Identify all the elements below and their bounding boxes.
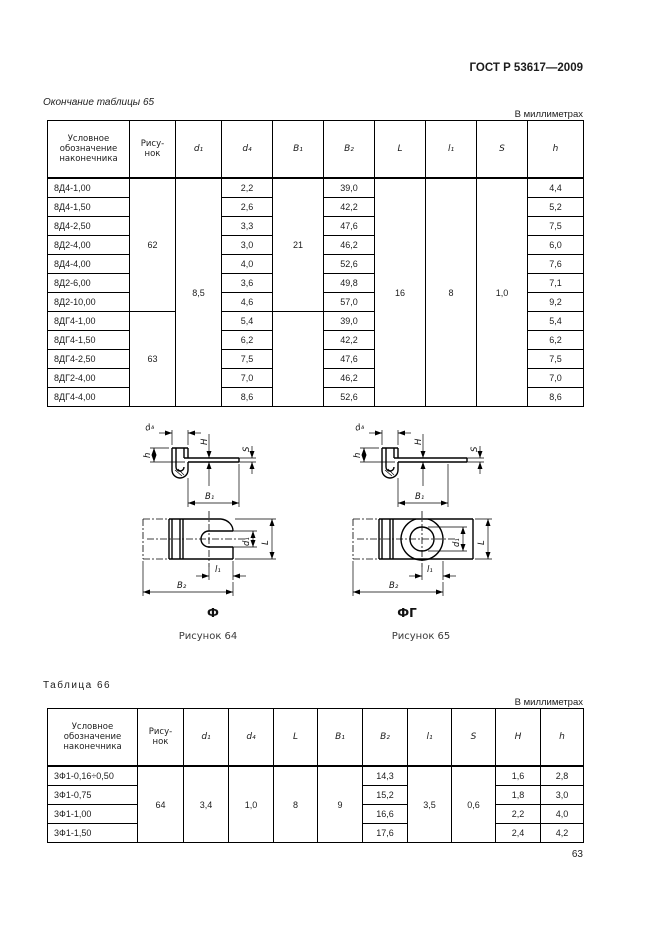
H-cell: 1,6 bbox=[496, 766, 541, 786]
figure-64-caption: Рисунок 64 bbox=[179, 631, 238, 642]
designation-cell: 3Ф1-0,75 bbox=[48, 786, 138, 805]
table-66: Условное обозначение наконечника Рису-но… bbox=[47, 708, 584, 843]
col-B1: B₁ bbox=[273, 121, 324, 179]
standard-reference: ГОСТ Р 53617—2009 bbox=[470, 62, 583, 74]
dim-label-S: S bbox=[470, 446, 480, 452]
d4-cell: 8,6 bbox=[222, 388, 273, 407]
dim-label-d1: d₁ bbox=[452, 538, 462, 547]
type-label-ring: ФГ bbox=[397, 606, 417, 620]
d4-cell: 5,4 bbox=[222, 312, 273, 331]
dim-label-d1: d₁ bbox=[242, 537, 252, 546]
col-d4: d₄ bbox=[229, 709, 274, 767]
table65-header-row: Условное обозначение наконечника Рису-но… bbox=[48, 121, 584, 179]
B2-cell: 42,2 bbox=[324, 198, 375, 217]
dim-label-B1: B₁ bbox=[205, 492, 214, 502]
designation-cell: 8ДГ4-4,00 bbox=[48, 388, 130, 407]
d4-cell: 4,0 bbox=[222, 255, 273, 274]
table-row: 3Ф1-0,16÷0,50 64 3,4 1,0 8 9 14,3 3,5 0,… bbox=[48, 766, 584, 786]
col-h: h bbox=[541, 709, 584, 767]
col-designation: Условное обозначение наконечника bbox=[48, 709, 138, 767]
d4-cell: 2,2 bbox=[222, 178, 273, 198]
dim-label-h: h bbox=[143, 453, 153, 458]
h-cell: 8,6 bbox=[528, 388, 584, 407]
d4-cell: 7,5 bbox=[222, 350, 273, 369]
d1-cell: 8,5 bbox=[176, 178, 222, 407]
col-S: S bbox=[452, 709, 496, 767]
H-cell: 2,2 bbox=[496, 805, 541, 824]
dim-label-H: H bbox=[414, 438, 424, 445]
col-L: L bbox=[274, 709, 318, 767]
B2-cell: 39,0 bbox=[324, 312, 375, 331]
col-figure: Рису-нок bbox=[138, 709, 184, 767]
designation-cell: 8Д4-1,50 bbox=[48, 198, 130, 217]
h-cell: 6,2 bbox=[528, 331, 584, 350]
d4-cell: 3,6 bbox=[222, 274, 273, 293]
col-figure-label: Рису-нок bbox=[146, 727, 176, 747]
col-figure-label: Рису-нок bbox=[138, 139, 168, 159]
dim-label-h: h bbox=[353, 453, 363, 458]
S-cell: 1,0 bbox=[477, 178, 528, 407]
designation-cell: 8Д4-2,50 bbox=[48, 217, 130, 236]
table65-caption: Окончание таблицы 65 bbox=[43, 97, 154, 108]
dim-label-B1: B₁ bbox=[415, 492, 424, 502]
h-cell: 9,2 bbox=[528, 293, 584, 312]
page-number: 63 bbox=[572, 849, 583, 860]
table-row: 8Д4-1,00 62 8,5 2,2 21 39,0 16 8 1,0 4,4 bbox=[48, 178, 584, 198]
designation-cell: 8Д4-4,00 bbox=[48, 255, 130, 274]
S-cell: 0,6 bbox=[452, 766, 496, 843]
l1-cell: 8 bbox=[426, 178, 477, 407]
L-cell: 8 bbox=[274, 766, 318, 843]
designation-cell: 8Д2-6,00 bbox=[48, 274, 130, 293]
col-L: L bbox=[375, 121, 426, 179]
h-cell: 7,5 bbox=[528, 350, 584, 369]
B2-cell: 52,6 bbox=[324, 255, 375, 274]
l1-cell: 3,5 bbox=[408, 766, 452, 843]
col-d1: d₁ bbox=[184, 709, 229, 767]
col-H: H bbox=[496, 709, 541, 767]
dim-label-d4: d₄ bbox=[354, 422, 366, 434]
col-figure: Рису-нок bbox=[130, 121, 176, 179]
designation-cell: 8ДГ4-1,00 bbox=[48, 312, 130, 331]
col-d4: d₄ bbox=[222, 121, 273, 179]
B2-cell: 17,6 bbox=[363, 824, 408, 843]
figure-65-drawing: d₄ h H S B₁ d₁ L l₁ B₂ ФГ Рисунок 65 bbox=[345, 415, 535, 645]
col-l1: l₁ bbox=[408, 709, 452, 767]
d4-cell: 1,0 bbox=[229, 766, 274, 843]
figure-cell: 62 bbox=[130, 178, 176, 312]
L-cell: 16 bbox=[375, 178, 426, 407]
d1-cell: 3,4 bbox=[184, 766, 229, 843]
B2-cell: 15,2 bbox=[363, 786, 408, 805]
figure-cell: 63 bbox=[130, 312, 176, 407]
col-designation: Условное обозначение наконечника bbox=[48, 121, 130, 179]
h-cell: 5,2 bbox=[528, 198, 584, 217]
h-cell: 4,0 bbox=[541, 805, 584, 824]
h-cell: 4,2 bbox=[541, 824, 584, 843]
designation-cell: 8ДГ4-1,50 bbox=[48, 331, 130, 350]
designation-cell: 8ДГ4-2,50 bbox=[48, 350, 130, 369]
figure-64-drawing: d₄ h H S B₁ d₁ L l₁ B₂ Ф Рисунок 64 bbox=[135, 415, 285, 645]
B2-cell: 16,6 bbox=[363, 805, 408, 824]
B2-cell: 46,2 bbox=[324, 236, 375, 255]
d4-cell: 3,0 bbox=[222, 236, 273, 255]
h-cell: 7,5 bbox=[528, 217, 584, 236]
B2-cell: 39,0 bbox=[324, 178, 375, 198]
B2-cell: 57,0 bbox=[324, 293, 375, 312]
H-cell: 2,4 bbox=[496, 824, 541, 843]
designation-cell: 3Ф1-0,16÷0,50 bbox=[48, 766, 138, 786]
B2-cell: 47,6 bbox=[324, 217, 375, 236]
col-h: h bbox=[528, 121, 584, 179]
B1-cell: 21 bbox=[273, 178, 324, 312]
col-S: S bbox=[477, 121, 528, 179]
designation-cell: 8Д4-1,00 bbox=[48, 178, 130, 198]
h-cell: 4,4 bbox=[528, 178, 584, 198]
d4-cell: 6,2 bbox=[222, 331, 273, 350]
dim-label-L: L bbox=[477, 540, 487, 545]
designation-cell: 8Д2-4,00 bbox=[48, 236, 130, 255]
table66-units-note: В миллиметрах bbox=[515, 697, 583, 708]
designation-cell: 3Ф1-1,00 bbox=[48, 805, 138, 824]
B1-cell: 9 bbox=[318, 766, 363, 843]
document-page: ГОСТ Р 53617—2009 Окончание таблицы 65 В… bbox=[0, 0, 661, 936]
d4-cell: 4,6 bbox=[222, 293, 273, 312]
dim-label-B2: B₂ bbox=[389, 581, 399, 591]
h-cell: 3,0 bbox=[541, 786, 584, 805]
h-cell: 5,4 bbox=[528, 312, 584, 331]
B2-cell: 42,2 bbox=[324, 331, 375, 350]
h-cell: 2,8 bbox=[541, 766, 584, 786]
dim-label-L: L bbox=[261, 540, 271, 545]
col-d1: d₁ bbox=[176, 121, 222, 179]
B2-cell: 46,2 bbox=[324, 369, 375, 388]
table-65: Условное обозначение наконечника Рису-но… bbox=[47, 120, 584, 407]
B2-cell: 14,3 bbox=[363, 766, 408, 786]
h-cell: 7,1 bbox=[528, 274, 584, 293]
designation-cell: 8ДГ2-4,00 bbox=[48, 369, 130, 388]
figure-cell: 64 bbox=[138, 766, 184, 843]
col-B1: B₁ bbox=[318, 709, 363, 767]
table66-caption: Таблица 66 bbox=[43, 680, 111, 691]
table65-units-note: В миллиметрах bbox=[515, 109, 583, 120]
dim-label-B2: B₂ bbox=[177, 581, 187, 591]
col-B2: B₂ bbox=[324, 121, 375, 179]
designation-cell: 3Ф1-1,50 bbox=[48, 824, 138, 843]
h-cell: 7,6 bbox=[528, 255, 584, 274]
h-cell: 6,0 bbox=[528, 236, 584, 255]
lug-side-view bbox=[382, 448, 467, 478]
dim-label-S: S bbox=[242, 446, 252, 452]
h-cell: 7,0 bbox=[528, 369, 584, 388]
B2-cell: 47,6 bbox=[324, 350, 375, 369]
table66-header-row: Условное обозначение наконечника Рису-но… bbox=[48, 709, 584, 767]
figure-65-caption: Рисунок 65 bbox=[392, 631, 451, 642]
top-dimensions bbox=[353, 519, 492, 596]
B1-cell bbox=[273, 312, 324, 407]
dim-label-l1: l₁ bbox=[427, 565, 433, 575]
dim-label-l1: l₁ bbox=[215, 565, 221, 575]
d4-cell: 2,6 bbox=[222, 198, 273, 217]
d4-cell: 7,0 bbox=[222, 369, 273, 388]
H-cell: 1,8 bbox=[496, 786, 541, 805]
dim-label-d4: d₄ bbox=[144, 422, 156, 434]
col-B2: B₂ bbox=[363, 709, 408, 767]
dim-label-H: H bbox=[200, 438, 210, 445]
col-l1: l₁ bbox=[426, 121, 477, 179]
d4-cell: 3,3 bbox=[222, 217, 273, 236]
designation-cell: 8Д2-10,00 bbox=[48, 293, 130, 312]
B2-cell: 52,6 bbox=[324, 388, 375, 407]
type-label-fork: Ф bbox=[207, 606, 219, 620]
B2-cell: 49,8 bbox=[324, 274, 375, 293]
